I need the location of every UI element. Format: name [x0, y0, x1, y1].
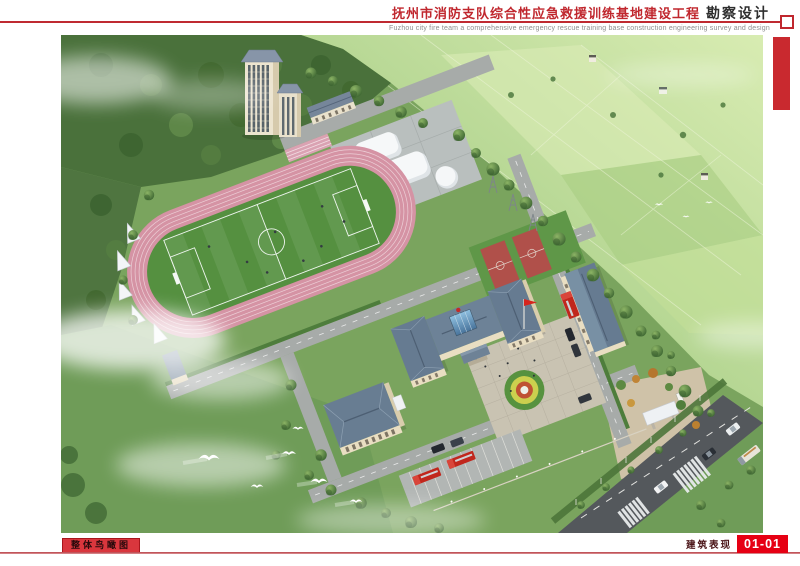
presentation-board: 抚州市消防支队综合性应急救援训练基地建设工程勘察设计 Fuzhou city f…: [0, 0, 800, 566]
red-side-bar: [773, 37, 790, 110]
project-subtitle-en: Fuzhou city fire team a comprehensive em…: [0, 25, 770, 32]
header-rule: [0, 21, 782, 23]
secondary-tower: [277, 84, 303, 137]
sheet-info: 建筑表现 01-01: [686, 535, 788, 553]
corner-square-decoration: [780, 15, 794, 29]
sheet-number: 01-01: [737, 535, 788, 553]
aerial-rendering: [61, 35, 763, 533]
footer-rule: [0, 552, 800, 554]
project-title: 抚州市消防支队综合性应急救援训练基地建设工程: [392, 6, 700, 21]
category-label: 建筑表现: [686, 537, 732, 551]
aerial-rendering-svg: [61, 35, 763, 533]
view-caption: 整体鸟瞰图: [62, 538, 140, 553]
title-block: 抚州市消防支队综合性应急救援训练基地建设工程勘察设计: [0, 3, 770, 23]
title-suffix: 勘察设计: [706, 7, 770, 22]
